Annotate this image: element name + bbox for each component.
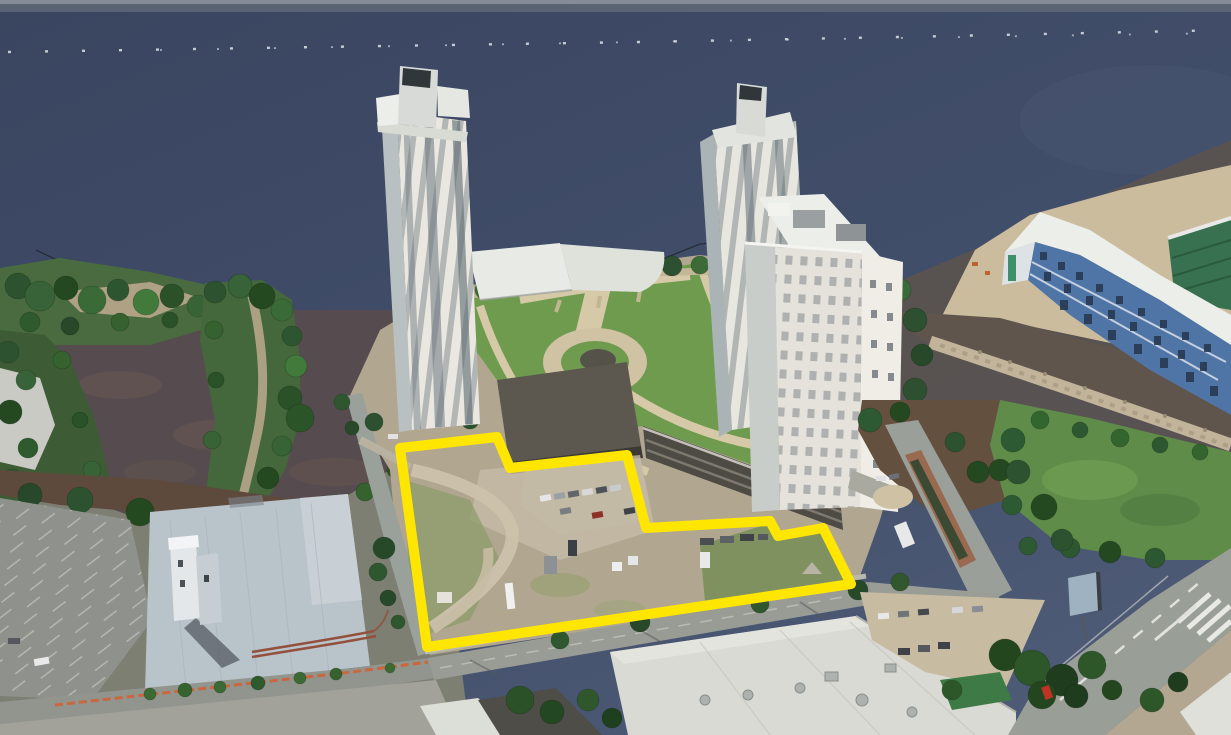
parked-car (876, 476, 886, 481)
silo-window (180, 580, 185, 587)
tower-window-grid (775, 247, 862, 510)
construction-hoist (1008, 255, 1016, 281)
parked-car-dark (8, 638, 20, 644)
roof-wing-right (437, 86, 470, 118)
silo-window (204, 575, 209, 582)
penthouse-opening (402, 68, 431, 88)
equipment (972, 262, 978, 266)
silo-window (178, 560, 183, 567)
rooftop-mechanical (836, 224, 866, 241)
car-at-base (388, 434, 398, 439)
arc-roof-building (560, 244, 664, 292)
silo-tower-2 (196, 553, 222, 625)
field-dark-patch (1120, 494, 1200, 526)
base-tree (365, 413, 383, 431)
equipment (985, 271, 990, 275)
rooftop-mechanical (793, 210, 825, 228)
aerial-imagery-canvas[interactable] (0, 0, 1231, 735)
field-light-patch (1042, 460, 1138, 500)
rooftop-unit (768, 203, 790, 216)
mud-patch (78, 371, 162, 399)
grass-tuft (530, 573, 590, 597)
white-shed (437, 592, 452, 603)
horizon-line (0, 0, 1231, 4)
cul-de-sac (873, 485, 913, 509)
